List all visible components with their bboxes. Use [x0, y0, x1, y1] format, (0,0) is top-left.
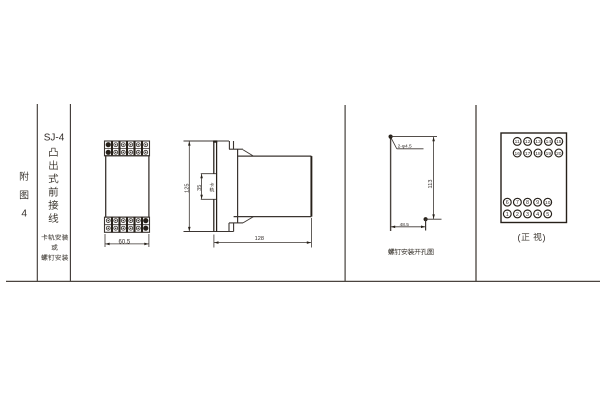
svg-text:35: 35 [197, 185, 203, 191]
svg-text:4: 4 [536, 212, 539, 218]
svg-text:113: 113 [428, 180, 434, 189]
svg-text:6: 6 [506, 200, 509, 206]
svg-text:13: 13 [535, 139, 541, 145]
svg-text:18: 18 [535, 151, 541, 157]
svg-text:60.5: 60.5 [119, 240, 131, 246]
svg-text:15: 15 [556, 139, 562, 145]
svg-text:9: 9 [536, 200, 539, 206]
svg-text:20: 20 [556, 151, 562, 157]
svg-text:48.5: 48.5 [400, 222, 410, 228]
svg-text:11: 11 [515, 139, 520, 145]
svg-text:5: 5 [546, 212, 549, 218]
svg-text:19: 19 [546, 151, 552, 157]
svg-text:SJ-4: SJ-4 [44, 133, 65, 144]
svg-text:8: 8 [526, 200, 529, 206]
svg-text:7: 7 [516, 200, 519, 206]
svg-text:125: 125 [184, 184, 190, 193]
svg-text:(: ( [518, 232, 521, 242]
svg-text:): ) [543, 232, 546, 242]
svg-text:2-φ4.5: 2-φ4.5 [398, 144, 412, 150]
svg-text:3: 3 [526, 212, 529, 218]
svg-text:14: 14 [546, 139, 552, 145]
svg-text:128: 128 [255, 236, 264, 242]
svg-text:4: 4 [21, 208, 27, 219]
svg-text:2: 2 [516, 212, 519, 218]
svg-text:1: 1 [506, 212, 509, 218]
svg-text:16: 16 [514, 151, 520, 157]
svg-text:17: 17 [525, 151, 531, 157]
svg-text:12: 12 [525, 139, 531, 145]
svg-text:10: 10 [545, 200, 551, 206]
